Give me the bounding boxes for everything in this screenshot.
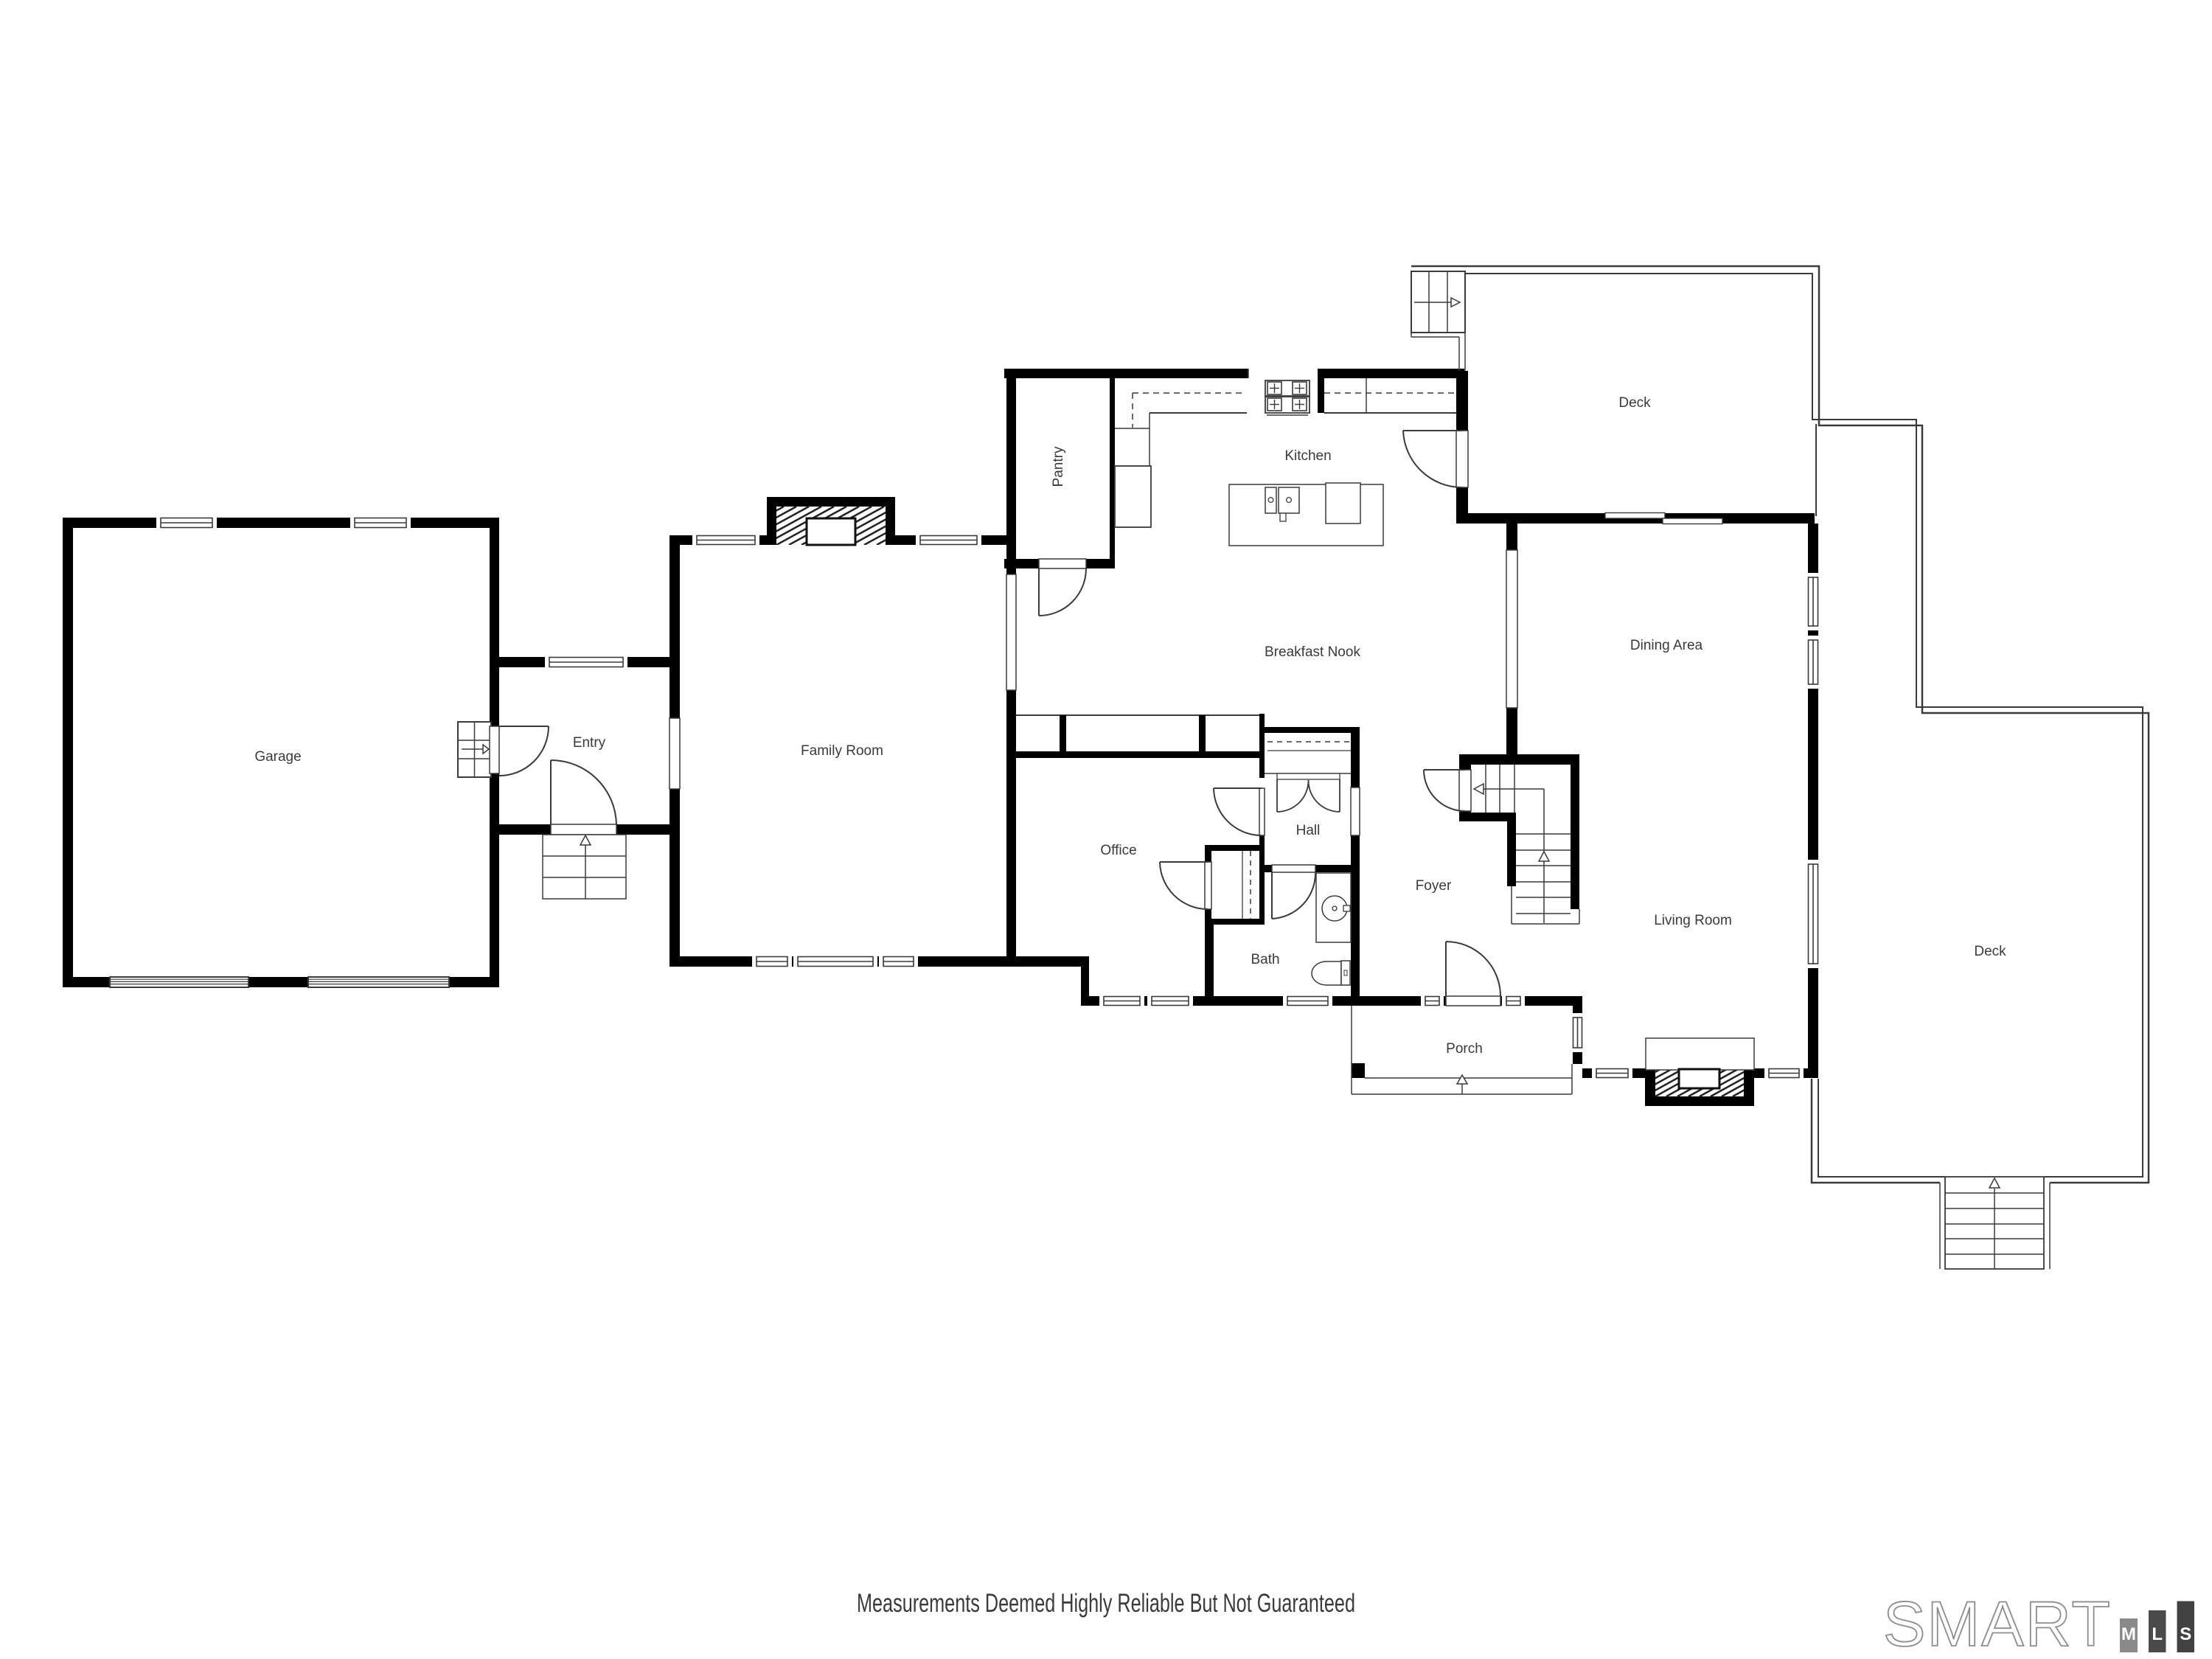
svg-text:SMART: SMART — [1883, 1589, 2112, 1659]
svg-text:Hall: Hall — [1296, 823, 1321, 838]
svg-text:Family Room: Family Room — [801, 743, 883, 759]
svg-text:M: M — [2121, 1624, 2136, 1644]
svg-text:Bath: Bath — [1251, 952, 1279, 967]
svg-text:Porch: Porch — [1446, 1041, 1483, 1057]
svg-text:S: S — [2180, 1624, 2191, 1644]
svg-text:Foyer: Foyer — [1416, 878, 1452, 894]
svg-text:Dining Area: Dining Area — [1630, 638, 1703, 653]
svg-text:L: L — [2152, 1624, 2163, 1644]
svg-text:Office: Office — [1100, 843, 1136, 858]
svg-text:Entry: Entry — [573, 735, 606, 751]
svg-text:Deck: Deck — [1974, 944, 2006, 959]
svg-text:Breakfast Nook: Breakfast Nook — [1265, 644, 1360, 660]
svg-text:Kitchen: Kitchen — [1284, 448, 1331, 464]
svg-text:Pantry: Pantry — [1051, 446, 1066, 487]
svg-text:Deck: Deck — [1618, 395, 1651, 411]
svg-text:Garage: Garage — [254, 749, 301, 765]
svg-text:Living Room: Living Room — [1654, 913, 1732, 928]
svg-text:Measurements Deemed Highly Rel: Measurements Deemed Highly Reliable But … — [857, 1589, 1355, 1618]
